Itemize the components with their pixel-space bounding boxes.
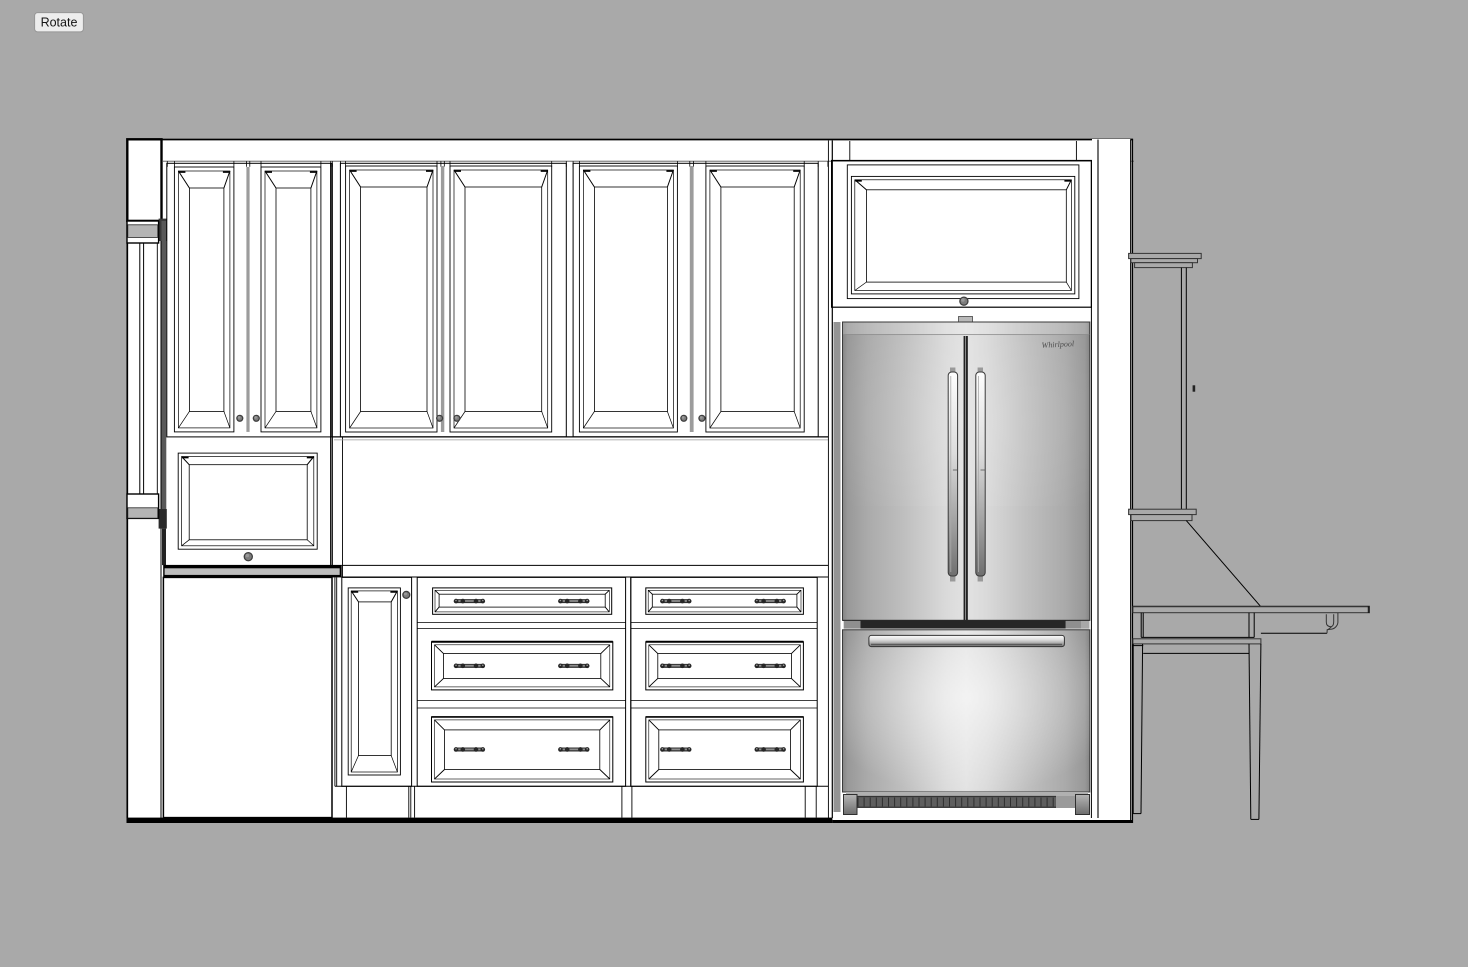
svg-text:Rotate: Rotate xyxy=(41,15,78,29)
svg-text:Whirlpool: Whirlpool xyxy=(1041,339,1075,350)
